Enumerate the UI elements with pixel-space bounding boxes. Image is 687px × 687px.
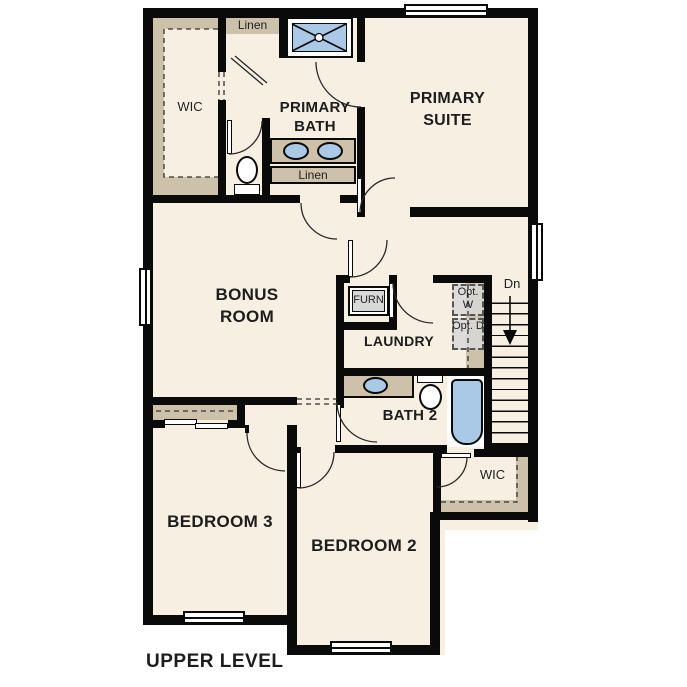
wall-bath2-bottom (335, 445, 447, 453)
label-bath-2: BATH 2 (380, 407, 440, 424)
page-title: UPPER LEVEL (146, 650, 366, 674)
wall-suite-left-upper (357, 18, 365, 62)
toilet-primary (236, 156, 258, 184)
wall-linen-right (279, 18, 287, 58)
label-wic-primary: WIC (160, 100, 220, 115)
closet-slider-left (164, 419, 197, 425)
wall-hall-top-a (283, 195, 300, 203)
bedroom2-wic-shelf-bottom (441, 500, 528, 512)
wall-closet-bottom-a (153, 420, 165, 428)
closet-slider-right (195, 423, 228, 429)
wall-suite-bottom (410, 207, 538, 217)
door-leaf-laundry (389, 283, 394, 318)
door-leaf-bath2 (336, 404, 341, 442)
window-bonus-room (139, 268, 152, 326)
bathtub (451, 379, 483, 445)
wall-laundry-bottom (337, 368, 492, 376)
bedroom3-closet-shelf (153, 403, 237, 420)
stairs (492, 293, 528, 444)
label-linen-top: Linen (226, 19, 279, 33)
window-stairwell (530, 223, 543, 281)
wall-wic2-left (433, 449, 441, 520)
label-opt-dryer: Opt. D (452, 320, 484, 333)
wall-hall-top-b (340, 195, 357, 203)
label-bonus-room: BONUS ROOM (195, 284, 299, 328)
label-linen-hall: Linen (270, 169, 356, 183)
wall-laundry-left (336, 275, 344, 408)
door-leaf-wic2 (441, 453, 471, 458)
wall-closet-bottom-b (228, 420, 245, 428)
toilet-primary-tank (234, 184, 260, 195)
label-primary-suite: PRIMARY SUITE (385, 88, 510, 132)
shower-icon (292, 23, 347, 52)
wall-wic2-bottom (433, 512, 538, 520)
label-bedroom-3: BEDROOM 3 (153, 511, 287, 532)
label-primary-bath: PRIMARY BATH (273, 98, 357, 136)
wall-wic2-top-b (474, 449, 538, 457)
wall-wic-right-upper (218, 18, 226, 72)
vanity-sink-left (283, 142, 309, 160)
wall-bedroom3-door-stub (245, 425, 249, 433)
wall-bonus-bottom (153, 397, 297, 405)
door-leaf-toilet (227, 120, 232, 154)
label-stairs-down: Dn (498, 277, 526, 292)
label-furnace: FURN (348, 294, 389, 307)
wall-bedroom2-right (430, 512, 440, 655)
bath2-sink (363, 377, 388, 394)
vanity-sink-right (317, 142, 343, 160)
wall-stairs-left-upper (484, 275, 492, 375)
wall-toilet-stub (262, 118, 270, 203)
door-leaf-suite (357, 178, 362, 213)
wall-furn-bottom (337, 322, 397, 330)
label-opt-washer: Opt. W (452, 286, 484, 311)
wall-stairs-left-lower (484, 368, 492, 452)
window-bedroom3 (183, 611, 245, 624)
window-primary-suite (404, 4, 488, 17)
label-wic-bedroom2: WIC (465, 468, 520, 483)
label-bedroom-2: BEDROOM 2 (297, 535, 431, 556)
floor-plan: WIC Linen PRIMARY BATH PRIMARY SUITE Lin… (0, 0, 687, 687)
door-leaf-bedroom2 (296, 452, 301, 488)
door-leaf-furnace (348, 240, 353, 277)
label-laundry: LAUNDRY (347, 333, 451, 351)
